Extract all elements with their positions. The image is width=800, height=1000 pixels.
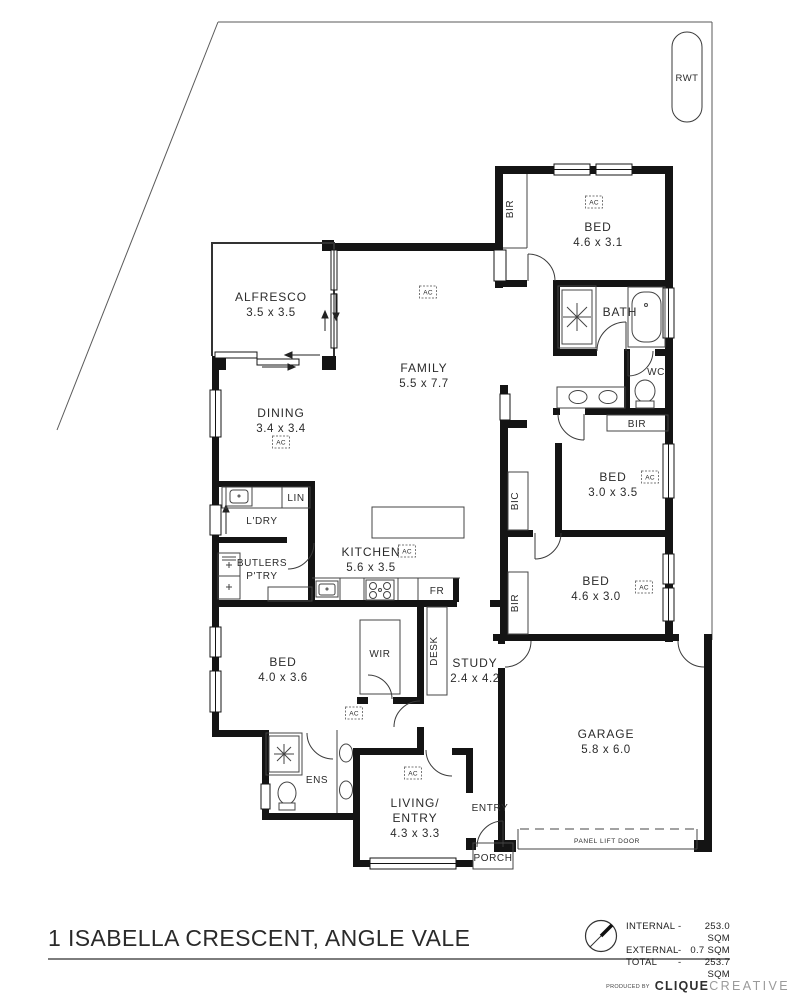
svg-text:4.6 x 3.1: 4.6 x 3.1 xyxy=(573,237,623,249)
room-label-wc: WC xyxy=(647,367,665,378)
ac-bed1: AC xyxy=(586,196,603,208)
bic-label: BIC xyxy=(510,492,521,510)
svg-text:2.4 x 4.2: 2.4 x 4.2 xyxy=(450,673,500,685)
shower-symbol xyxy=(563,303,591,331)
joinery xyxy=(222,174,668,869)
room-label-bed1: BED xyxy=(584,220,611,234)
rwt-tank: RWT xyxy=(672,32,702,122)
lin-label: LIN xyxy=(287,493,304,504)
producer-brand-light: CREATIVE xyxy=(709,979,790,993)
room-label-bed4: BED xyxy=(269,655,296,669)
svg-text:AC: AC xyxy=(423,290,433,297)
walls xyxy=(212,166,712,867)
producer-brand-bold: CLIQUE xyxy=(655,979,709,993)
ac-kitchen: AC xyxy=(399,545,416,557)
room-label-bath: BATH xyxy=(603,305,638,319)
room-label-dining: DINING xyxy=(257,406,304,420)
svg-text:4.3 x 3.3: 4.3 x 3.3 xyxy=(390,828,440,840)
svg-text:AC: AC xyxy=(402,549,412,556)
svg-text:AC: AC xyxy=(276,440,286,447)
svg-text:ENTRY: ENTRY xyxy=(393,811,438,825)
svg-text:AC: AC xyxy=(645,475,655,482)
floor-plan-page: RWT xyxy=(0,0,800,1000)
bir-label-bed2: BIR xyxy=(628,419,646,430)
ac-bed4: AC xyxy=(346,707,363,719)
svg-text:AC: AC xyxy=(639,585,649,592)
producer-prefix: PRODUCED BY xyxy=(606,984,650,990)
rwt-label: RWT xyxy=(676,73,699,84)
ac-living: AC xyxy=(405,767,422,779)
area-row-internal: INTERNAL - 253.0 SQM xyxy=(626,921,730,945)
floor-plan: RWT xyxy=(0,0,800,1000)
producer-credit: PRODUCED BYCLIQUECREATIVE xyxy=(0,977,790,995)
svg-text:AC: AC xyxy=(408,771,418,778)
svg-text:4.0 x 3.6: 4.0 x 3.6 xyxy=(258,672,308,684)
room-label-ldry: L'DRY xyxy=(246,516,277,527)
room-label-kitchen: KITCHEN xyxy=(342,545,401,559)
shower-symbol-ens xyxy=(274,744,294,764)
desk-label: DESK xyxy=(429,636,440,666)
room-label-bed2: BED xyxy=(599,470,626,484)
svg-text:3.5 x 3.5: 3.5 x 3.5 xyxy=(246,307,296,319)
page-title: 1 ISABELLA CRESCENT, ANGLE VALE xyxy=(48,925,470,952)
svg-text:3.0 x 3.5: 3.0 x 3.5 xyxy=(588,487,638,499)
room-label-wir: WIR xyxy=(369,649,390,660)
ac-bed2: AC xyxy=(642,471,659,483)
area-row-external: EXTERNAL - 0.7 SQM xyxy=(626,945,730,957)
room-label-family: FAMILY xyxy=(400,361,447,375)
room-label-study: STUDY xyxy=(452,656,497,670)
svg-text:4.6 x 3.0: 4.6 x 3.0 xyxy=(571,591,621,603)
svg-text:5.5 x 7.7: 5.5 x 7.7 xyxy=(399,378,449,390)
room-label-entry: ENTRY xyxy=(472,803,509,814)
bir-label-bed3: BIR xyxy=(510,594,521,612)
svg-text:P'TRY: P'TRY xyxy=(246,571,277,582)
room-label-butlers: BUTLERS xyxy=(237,558,287,569)
room-label-living: LIVING/ xyxy=(391,796,440,810)
fr-label: FR xyxy=(430,586,445,597)
north-compass-icon xyxy=(584,918,618,954)
garage-door: PANEL LIFT DOOR xyxy=(518,829,697,849)
svg-text:5.6 x 3.5: 5.6 x 3.5 xyxy=(346,562,396,574)
area-summary: INTERNAL - 253.0 SQM EXTERNAL - 0.7 SQM … xyxy=(626,921,730,981)
svg-text:AC: AC xyxy=(349,711,359,718)
ac-dining: AC xyxy=(273,436,290,448)
room-label-alfresco: ALFRESCO xyxy=(235,290,307,304)
panel-lift-door-label: PANEL LIFT DOOR xyxy=(574,838,640,845)
ac-family: AC xyxy=(420,286,437,298)
ac-bed3: AC xyxy=(636,581,653,593)
svg-text:3.4 x 3.4: 3.4 x 3.4 xyxy=(256,423,306,435)
svg-text:AC: AC xyxy=(589,200,599,207)
windows xyxy=(210,164,674,869)
bir-label-bed1: BIR xyxy=(505,200,516,218)
room-label-porch: PORCH xyxy=(473,853,512,864)
room-label-bed3: BED xyxy=(582,574,609,588)
svg-text:5.8 x 6.0: 5.8 x 6.0 xyxy=(581,744,631,756)
room-label-garage: GARAGE xyxy=(578,727,635,741)
room-label-ens: ENS xyxy=(306,775,328,786)
